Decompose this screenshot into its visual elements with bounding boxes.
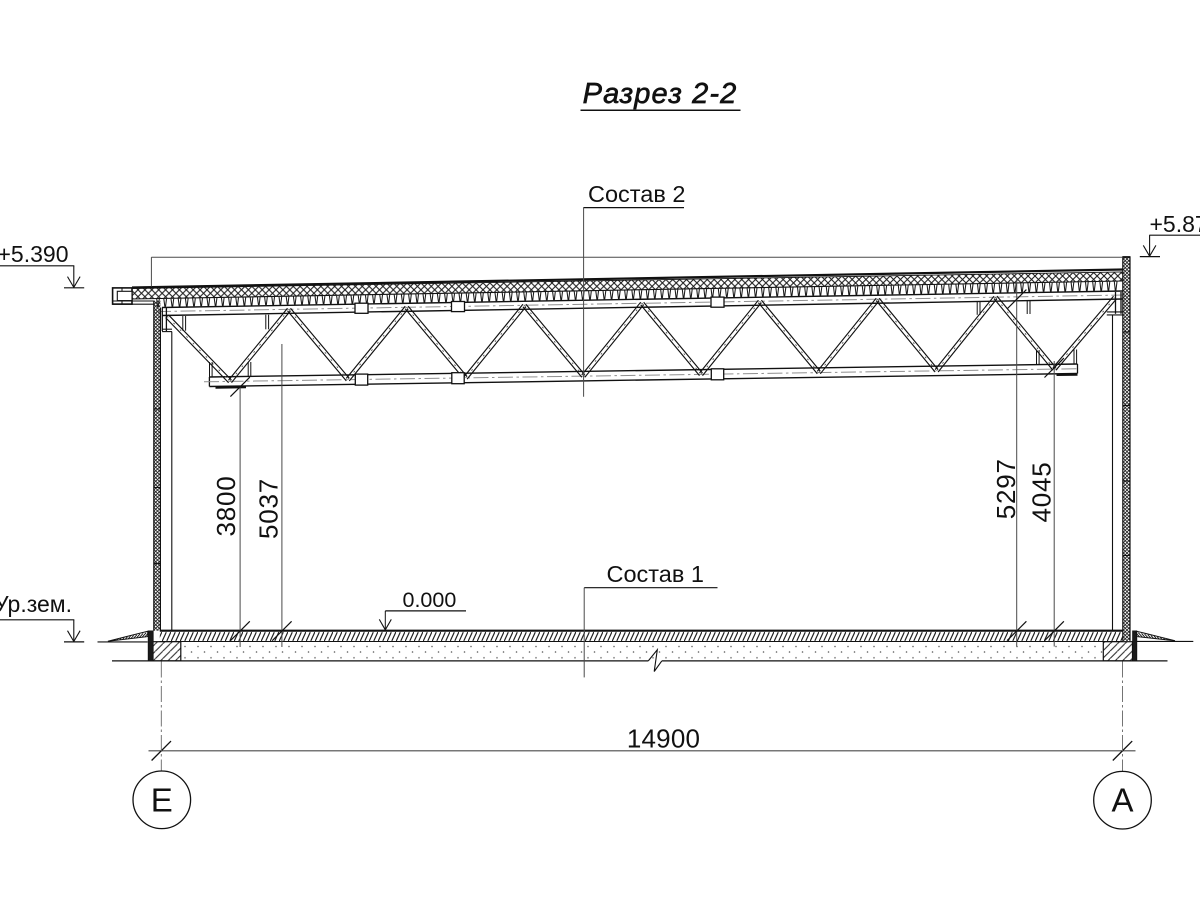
svg-text:5297: 5297 — [991, 458, 1021, 519]
svg-text:Состав 2: Состав 2 — [588, 181, 685, 207]
svg-text:Разрез 2-2: Разрез 2-2 — [583, 78, 738, 110]
svg-text:Е: Е — [151, 781, 173, 818]
svg-text:А: А — [1111, 782, 1133, 819]
svg-text:14900: 14900 — [627, 723, 700, 753]
svg-text:Состав 1: Состав 1 — [607, 561, 704, 587]
svg-text:5037: 5037 — [254, 478, 284, 539]
svg-text:3800: 3800 — [211, 475, 241, 536]
svg-text:4045: 4045 — [1027, 461, 1057, 522]
svg-text:+5.390: +5.390 — [0, 241, 69, 267]
svg-text:Ур.зем.: Ур.зем. — [0, 591, 72, 617]
svg-text:+5.870: +5.870 — [1150, 211, 1200, 237]
svg-text:0.000: 0.000 — [403, 588, 457, 612]
